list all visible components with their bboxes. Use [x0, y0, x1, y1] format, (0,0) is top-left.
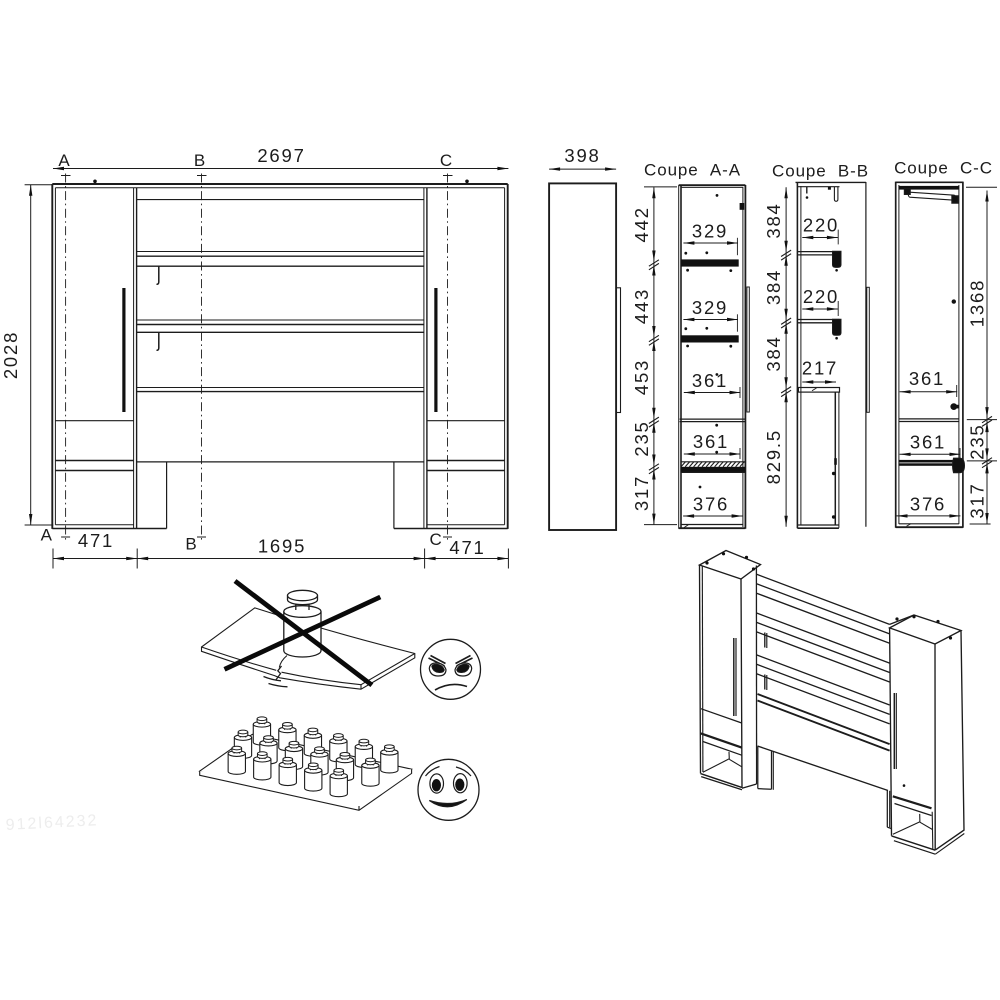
- svg-text:912l64232: 912l64232: [5, 812, 99, 834]
- svg-text:317: 317: [967, 482, 988, 518]
- svg-text:471: 471: [78, 530, 114, 551]
- svg-text:B: B: [185, 535, 196, 554]
- svg-text:361: 361: [692, 370, 728, 391]
- svg-text:471: 471: [449, 537, 485, 558]
- svg-text:1368: 1368: [967, 279, 988, 327]
- svg-text:220: 220: [803, 286, 839, 307]
- svg-text:384: 384: [763, 335, 784, 371]
- svg-text:2028: 2028: [0, 331, 21, 379]
- svg-text:317: 317: [631, 475, 652, 511]
- svg-text:384: 384: [763, 269, 784, 305]
- svg-text:B: B: [194, 151, 205, 170]
- svg-text:2697: 2697: [257, 145, 305, 166]
- svg-text:A: A: [58, 151, 70, 170]
- svg-text:376: 376: [910, 494, 946, 515]
- svg-text:361: 361: [910, 431, 946, 452]
- svg-text:Coupe B-B: Coupe B-B: [772, 162, 869, 181]
- svg-text:329: 329: [692, 297, 728, 318]
- svg-text:361: 361: [693, 431, 729, 452]
- svg-text:220: 220: [803, 215, 839, 236]
- svg-text:442: 442: [631, 206, 652, 242]
- svg-text:Coupe C-C: Coupe C-C: [894, 159, 993, 178]
- svg-text:217: 217: [802, 358, 838, 379]
- svg-text:Coupe A-A: Coupe A-A: [644, 161, 741, 180]
- svg-text:1695: 1695: [258, 536, 306, 557]
- svg-text:453: 453: [631, 359, 652, 395]
- svg-text:C: C: [440, 151, 452, 170]
- svg-text:443: 443: [631, 288, 652, 324]
- svg-text:829.5: 829.5: [763, 429, 784, 484]
- svg-text:376: 376: [693, 494, 729, 515]
- svg-text:384: 384: [763, 202, 784, 238]
- svg-text:329: 329: [692, 221, 728, 242]
- svg-text:235: 235: [631, 420, 652, 456]
- svg-text:C: C: [430, 530, 442, 549]
- svg-text:235: 235: [967, 423, 988, 459]
- svg-text:A: A: [41, 526, 53, 545]
- svg-text:398: 398: [564, 145, 600, 166]
- svg-text:361: 361: [909, 368, 945, 389]
